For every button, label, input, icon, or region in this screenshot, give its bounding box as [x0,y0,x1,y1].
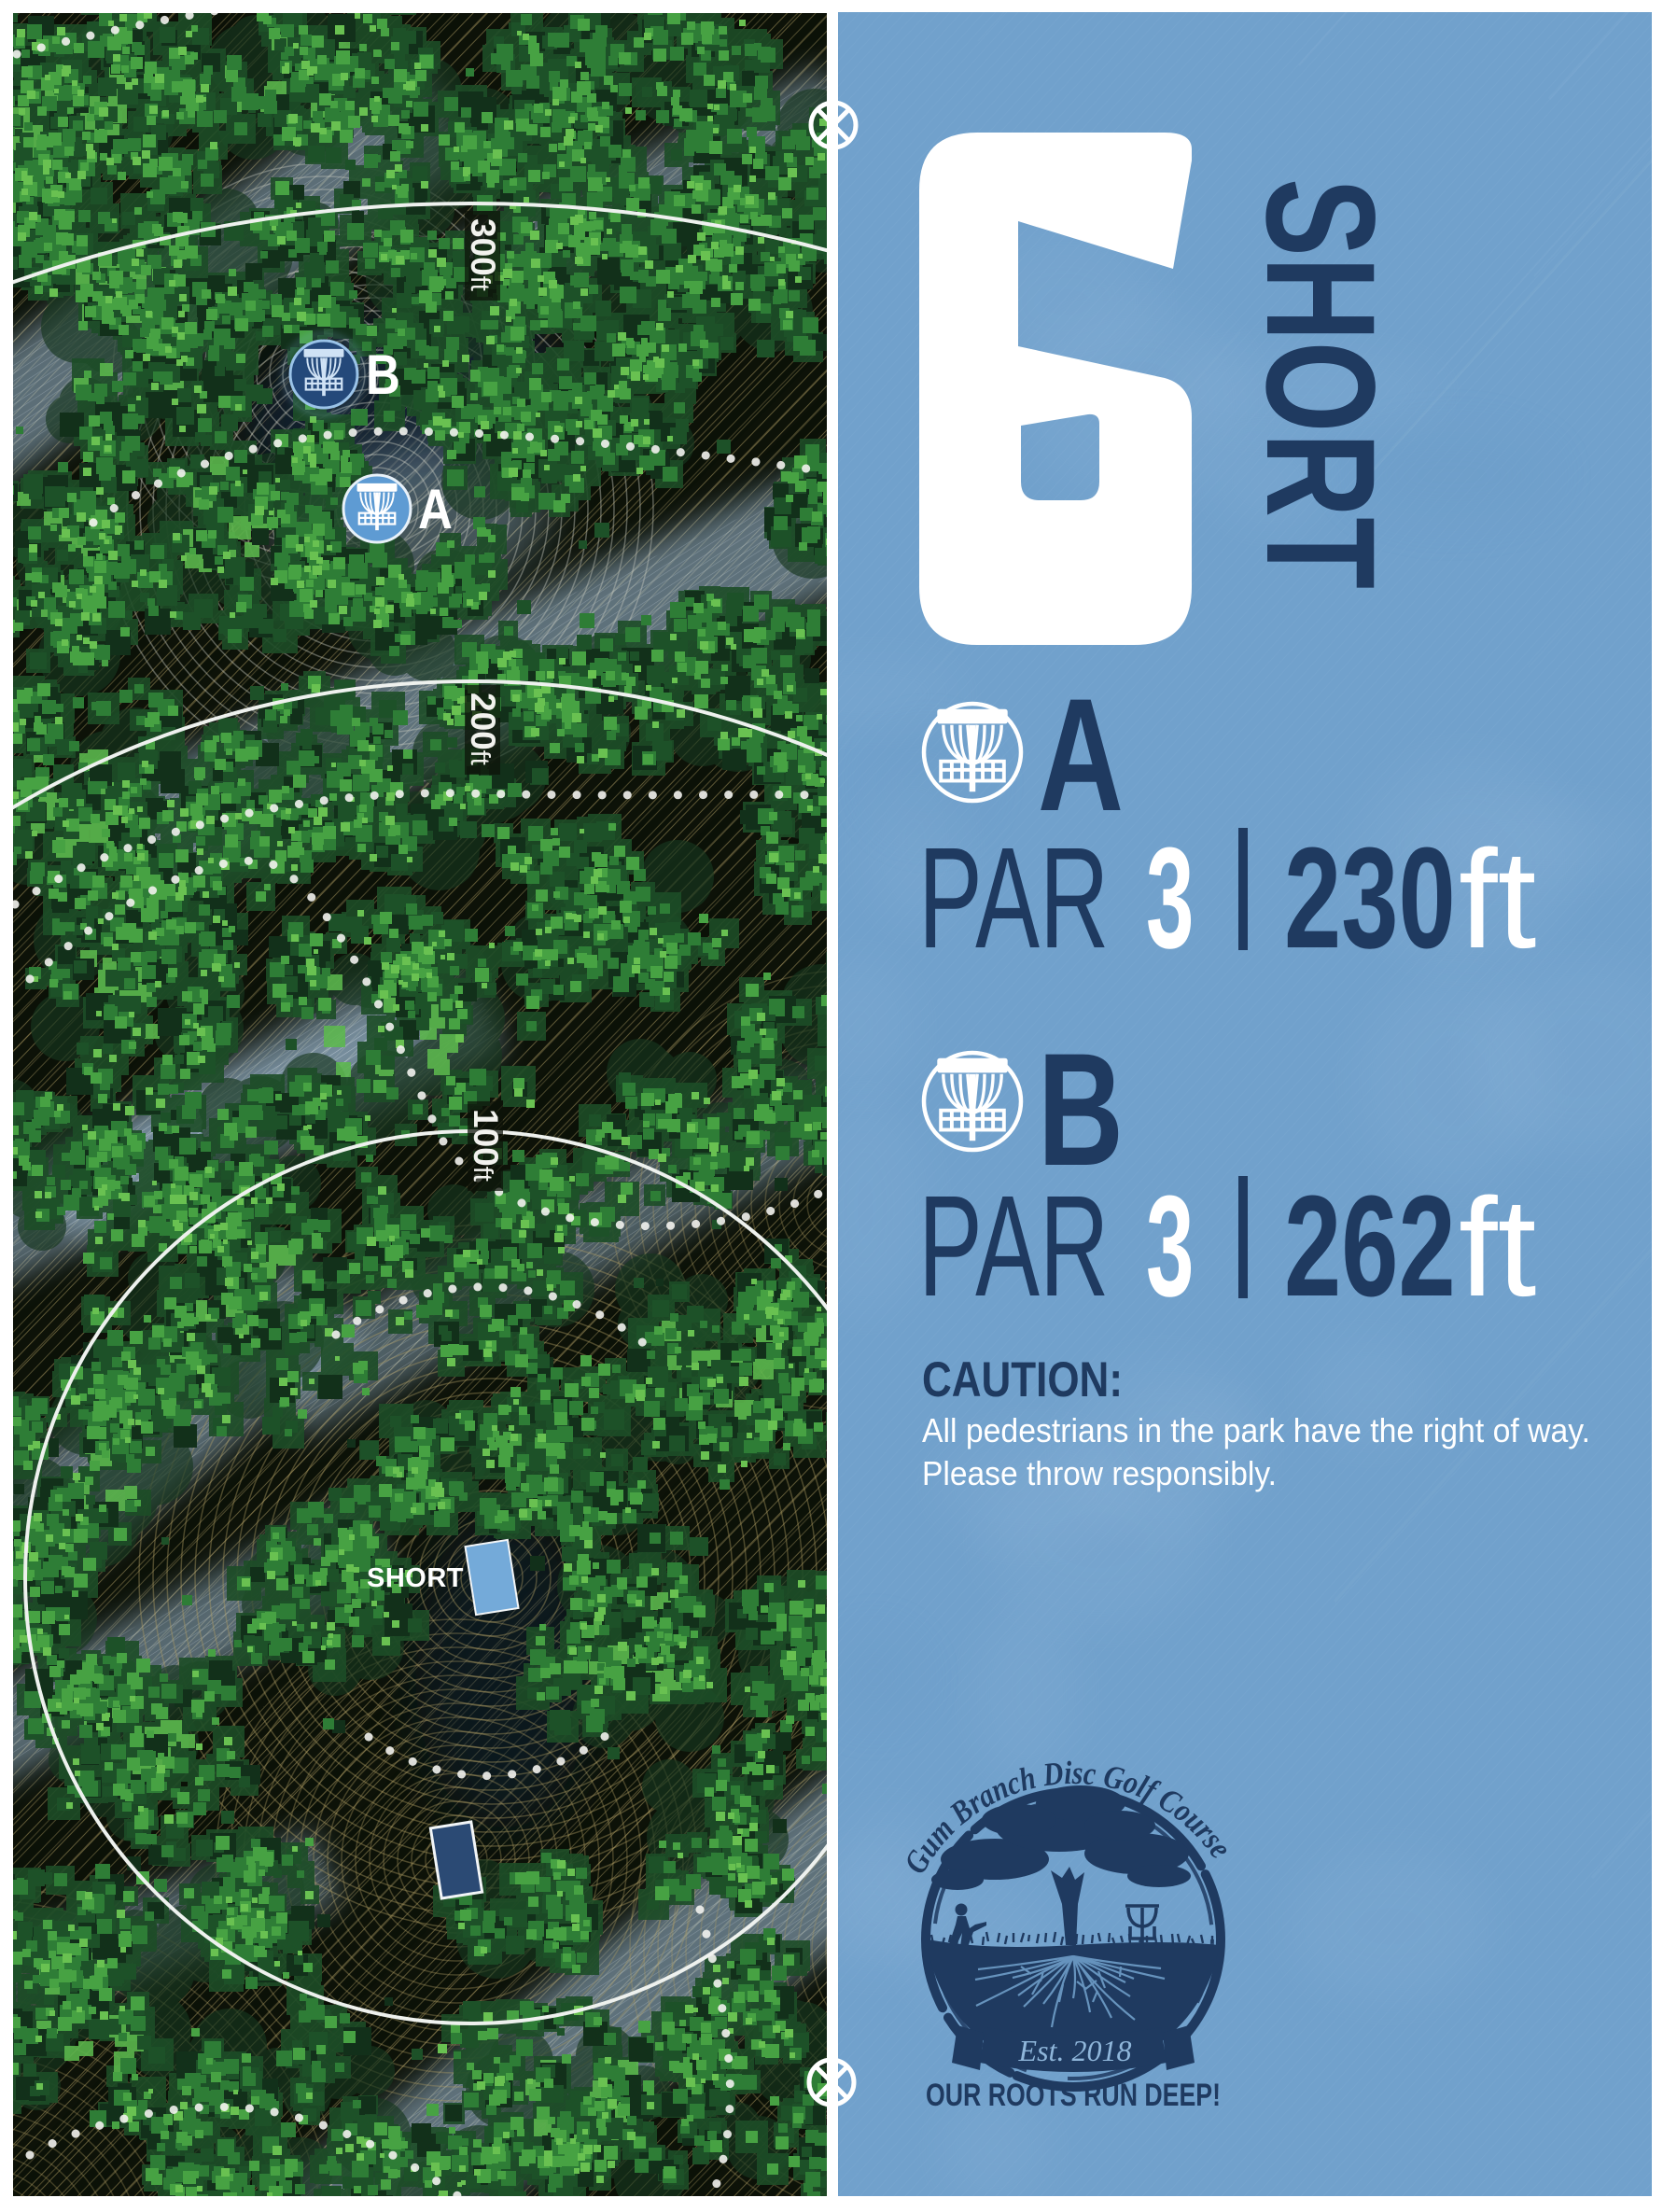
svg-text:ft: ft [1459,1169,1536,1325]
svg-text:PAR: PAR [918,1165,1109,1326]
svg-text:ft: ft [1459,820,1536,977]
svg-text:PAR: PAR [918,817,1109,978]
svg-text:Est. 2018: Est. 2018 [1018,2034,1132,2067]
svg-text:Please throw responsibly.: Please throw responsibly. [922,1454,1277,1492]
svg-text:262: 262 [1284,1167,1456,1326]
svg-text:3: 3 [1146,1166,1194,1326]
svg-text:OUR ROOTS RUN DEEP!: OUR ROOTS RUN DEEP! [926,2078,1221,2113]
svg-text:SHORT: SHORT [1234,178,1406,589]
svg-text:230: 230 [1284,819,1456,978]
svg-text:SHORT: SHORT [367,1563,464,1593]
svg-text:3: 3 [1146,818,1194,978]
svg-text:All pedestrians in the park ha: All pedestrians in the park have the rig… [922,1411,1590,1449]
svg-text:CAUTION:: CAUTION: [922,1352,1123,1407]
svg-text:A: A [418,478,453,540]
svg-text:B: B [366,343,400,406]
